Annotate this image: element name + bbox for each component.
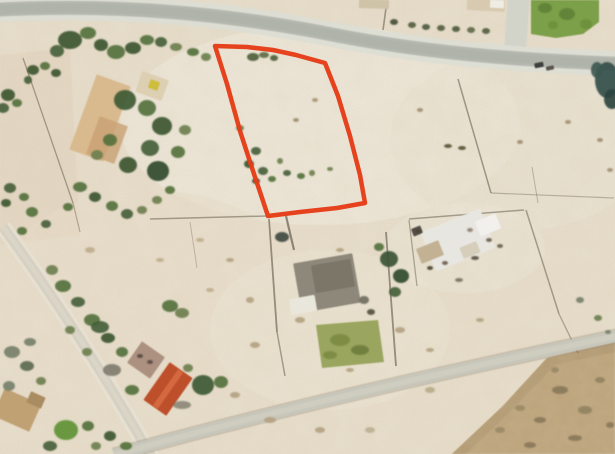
vegetation-blob	[101, 333, 115, 343]
vegetation-blob	[138, 100, 156, 116]
vegetation-blob	[40, 62, 50, 70]
vegetation-blob	[427, 266, 433, 270]
vegetation-blob	[417, 108, 423, 112]
vegetation-blob	[187, 48, 199, 56]
vegetation-blob	[576, 297, 584, 303]
vegetation-blob	[380, 251, 398, 267]
vegetation-blob	[1, 199, 11, 207]
vegetation-blob	[548, 21, 558, 29]
vegetation-blob	[476, 318, 484, 322]
vegetation-blob	[91, 442, 101, 450]
vegetation-blob	[104, 431, 116, 441]
vegetation-blob	[264, 417, 276, 423]
vegetation-blob	[196, 238, 204, 242]
top-edge-structure-right-white	[490, 0, 504, 8]
vegetation-blob	[534, 417, 546, 423]
compound-lawn	[316, 320, 384, 368]
vegetation-blob	[467, 228, 473, 232]
vegetation-blob	[156, 258, 164, 262]
vegetation-blob	[89, 192, 101, 202]
vegetation-blob	[246, 297, 254, 303]
vegetation-blob	[103, 134, 117, 146]
vegetation-blob	[336, 248, 344, 252]
vegetation-blob	[327, 167, 333, 171]
driveway-top-right	[504, 0, 529, 47]
vegetation-blob	[515, 405, 525, 411]
vegetation-blob	[17, 227, 27, 235]
vegetation-blob	[595, 377, 605, 383]
vegetation-blob	[551, 367, 559, 373]
vegetation-blob	[91, 321, 109, 333]
vegetation-blob	[201, 53, 211, 61]
vegetation-blob	[359, 296, 369, 304]
vegetation-blob	[27, 65, 39, 75]
vegetation-blob	[82, 348, 92, 356]
vegetation-blob	[65, 326, 75, 334]
vegetation-blob	[309, 170, 315, 176]
vegetation-blob	[607, 168, 613, 172]
vegetation-blob	[258, 167, 268, 175]
vegetation-blob	[591, 62, 603, 78]
vegetation-blob	[147, 161, 169, 181]
vegetation-blob	[467, 27, 475, 33]
vegetation-blob	[24, 76, 32, 84]
vegetation-blob	[173, 401, 191, 409]
vegetation-blob	[73, 182, 87, 192]
vegetation-blob	[455, 278, 463, 282]
vegetation-blob	[346, 368, 354, 372]
vegetation-blob	[297, 173, 305, 179]
vegetation-blob	[437, 25, 445, 31]
vegetation-blob	[393, 269, 409, 283]
vegetation-blob	[103, 364, 121, 376]
vegetation-blob	[444, 144, 452, 148]
vegetation-blob	[114, 90, 136, 110]
vegetation-blob	[125, 42, 141, 54]
vegetation-blob	[91, 150, 103, 160]
vegetation-blob	[175, 308, 189, 318]
vegetation-blob	[259, 52, 269, 58]
vegetation-blob	[367, 309, 375, 315]
vegetation-blob	[606, 422, 614, 428]
vegetation-blob	[268, 176, 276, 182]
vegetation-blob	[26, 207, 38, 217]
vegetation-blob	[183, 364, 193, 372]
vegetation-blob	[395, 327, 405, 333]
vegetation-blob	[85, 247, 95, 253]
vegetation-blob	[295, 317, 305, 323]
vegetation-blob	[41, 220, 51, 228]
top-edge-structure-mid	[359, 0, 389, 9]
vegetation-blob	[12, 99, 22, 107]
vegetation-blob	[58, 31, 82, 49]
vegetation-blob	[214, 376, 228, 388]
vegetation-blob	[206, 288, 214, 292]
vegetation-blob	[50, 45, 64, 57]
vegetation-blob	[24, 338, 36, 346]
vegetation-blob	[538, 3, 552, 13]
vegetation-blob	[330, 334, 350, 346]
vegetation-blob	[121, 209, 133, 219]
vegetation-blob	[422, 24, 430, 30]
vegetation-blob	[277, 158, 283, 164]
vegetation-blob	[425, 387, 435, 393]
vegetation-blob	[597, 138, 603, 142]
vegetation-blob	[365, 427, 375, 433]
vegetation-blob	[247, 53, 259, 61]
satellite-canvas	[0, 0, 615, 454]
vegetation-blob	[578, 406, 592, 414]
vegetation-blob	[155, 37, 167, 47]
vegetation-blob	[552, 386, 568, 394]
vegetation-blob	[594, 315, 602, 321]
vegetation-blob	[120, 442, 132, 450]
vegetation-blob	[119, 157, 137, 173]
vegetation-blob	[137, 206, 147, 214]
vegetation-blob	[605, 330, 611, 334]
vegetation-blob	[71, 297, 85, 307]
vegetation-blob	[152, 196, 162, 204]
vegetation-blob	[471, 256, 479, 260]
vegetation-blob	[426, 348, 434, 352]
vegetation-blob	[20, 361, 34, 371]
vegetation-blob	[524, 442, 536, 448]
vegetation-blob	[141, 140, 159, 156]
vegetation-blob	[495, 427, 505, 433]
vegetation-blob	[94, 39, 108, 51]
vegetation-blob	[293, 118, 299, 122]
vegetation-blob	[230, 392, 240, 398]
vegetation-blob	[43, 441, 57, 451]
vegetation-blob	[580, 19, 592, 29]
vegetation-blob	[442, 261, 448, 265]
vegetation-blob	[283, 170, 291, 176]
vegetation-blob	[497, 244, 503, 248]
vegetation-blob	[517, 140, 523, 144]
vegetation-blob	[171, 146, 185, 158]
vegetation-blob	[116, 347, 128, 357]
vegetation-blob	[82, 421, 94, 431]
vegetation-blob	[251, 147, 261, 155]
vegetation-blob	[482, 28, 490, 34]
vegetation-blob	[170, 43, 182, 51]
vegetation-blob	[458, 146, 466, 150]
vegetation-blob	[568, 435, 582, 441]
vegetation-blob	[106, 201, 118, 211]
vegetation-blob	[270, 55, 278, 61]
vegetation-blob	[54, 420, 78, 440]
vegetation-blob	[19, 193, 29, 201]
vegetation-blob	[486, 238, 492, 242]
vegetation-blob	[140, 35, 154, 45]
vegetation-blob	[408, 22, 416, 28]
vegetation-blob	[559, 8, 575, 20]
vegetation-blob	[250, 342, 260, 348]
vegetation-blob	[390, 19, 398, 25]
vegetation-blob	[323, 351, 337, 359]
vegetation-blob	[374, 243, 384, 251]
vegetation-blob	[107, 45, 125, 59]
vegetation-blob	[165, 186, 175, 194]
vegetation-blob	[1, 89, 15, 101]
vegetation-blob	[351, 345, 369, 355]
vegetation-blob	[192, 375, 214, 395]
vegetation-blob	[312, 98, 318, 102]
vegetation-blob	[147, 360, 153, 364]
vegetation-blob	[4, 183, 16, 193]
vegetation-blob	[179, 125, 191, 135]
vegetation-blob	[226, 258, 234, 262]
vegetation-blob	[4, 346, 20, 358]
vegetation-blob	[46, 265, 58, 275]
vegetation-blob	[36, 377, 46, 385]
vegetation-blob	[389, 287, 401, 297]
vegetation-blob	[415, 229, 421, 233]
satellite-map-view[interactable]	[0, 0, 615, 454]
vegetation-blob	[137, 354, 143, 358]
vegetation-blob	[275, 232, 289, 242]
vegetation-blob	[51, 69, 61, 77]
vegetation-blob	[3, 381, 15, 391]
vegetation-blob	[125, 385, 139, 395]
vegetation-blob	[55, 280, 71, 292]
vegetation-blob	[452, 26, 460, 32]
vegetation-blob	[63, 203, 73, 211]
vegetation-blob	[152, 117, 172, 135]
vegetation-blob	[80, 27, 96, 39]
vegetation-blob	[565, 120, 571, 124]
vegetation-blob	[315, 427, 325, 433]
vegetation-blob	[162, 300, 178, 312]
